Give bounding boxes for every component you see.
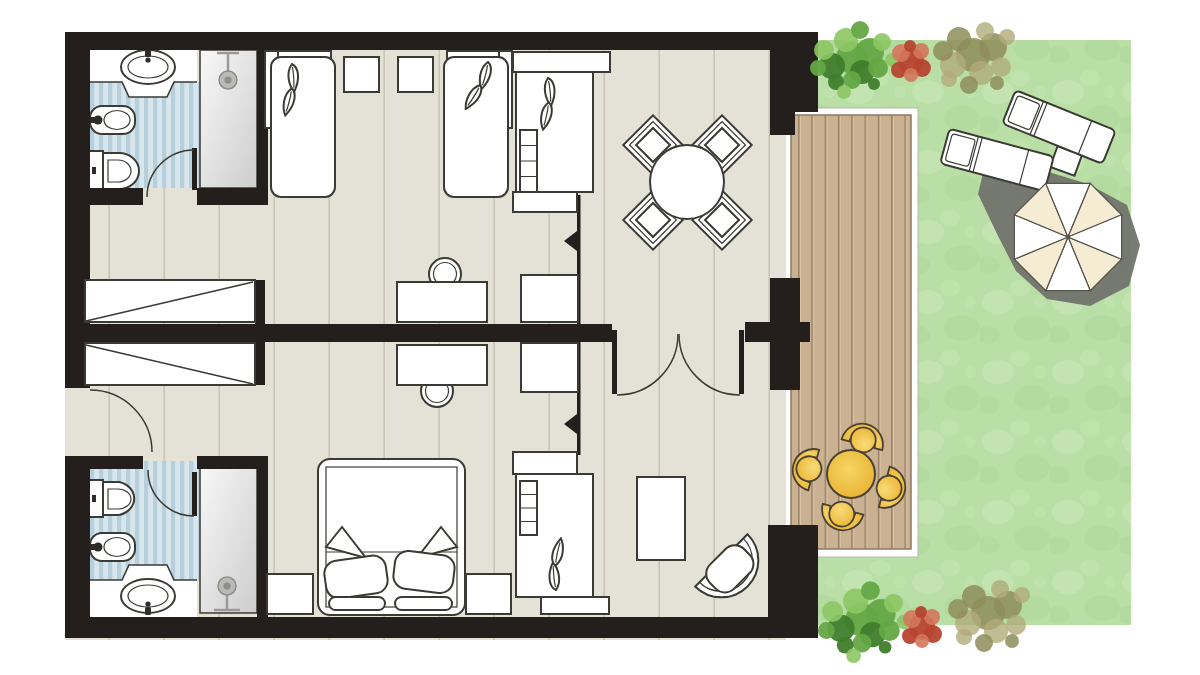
bush-red-top	[891, 40, 931, 82]
floor-plan-drawing	[0, 0, 1200, 675]
nightstand	[398, 57, 433, 92]
bathroom-lower	[88, 461, 257, 617]
nightstand	[267, 574, 313, 614]
nightstand	[466, 574, 511, 614]
wall-wardrobe-side	[255, 280, 265, 385]
bathroom-upper	[88, 49, 257, 197]
wall-right-top-column	[770, 32, 795, 135]
wall-unit-divider	[65, 324, 612, 342]
round-patio-table	[827, 450, 875, 498]
bidet	[89, 533, 135, 561]
nightstand	[344, 57, 379, 92]
side-table-upper	[521, 275, 578, 322]
wall-bath-upper-bottom-right	[197, 188, 268, 205]
sink	[121, 49, 175, 84]
wall-left-lower	[65, 462, 90, 638]
wall-bath-lower-top-left	[65, 456, 143, 469]
pillow	[323, 554, 390, 600]
tile-floor	[88, 461, 200, 580]
round-dining-table	[650, 145, 724, 219]
coffee-table	[637, 477, 685, 560]
toilet	[89, 151, 139, 190]
parasol-umbrella	[1014, 183, 1121, 290]
double-bed	[318, 459, 465, 615]
wall-bath-upper-bottom-left	[65, 188, 143, 205]
bush-red-bottom	[902, 606, 942, 648]
shower	[200, 463, 257, 613]
toilet	[89, 480, 134, 517]
pillow	[392, 549, 456, 594]
side-table-lower	[521, 343, 578, 392]
partition-line	[577, 195, 581, 455]
wall-top	[65, 32, 818, 50]
bidet	[89, 106, 135, 134]
floor-plan-canvas	[0, 0, 1200, 675]
wall-right-bottom-block	[768, 525, 818, 625]
wall-bottom	[65, 617, 818, 638]
wall-cross-vertical	[770, 278, 800, 390]
single-bed-right	[444, 51, 512, 197]
single-bed-left	[265, 51, 335, 197]
shower	[200, 50, 257, 188]
